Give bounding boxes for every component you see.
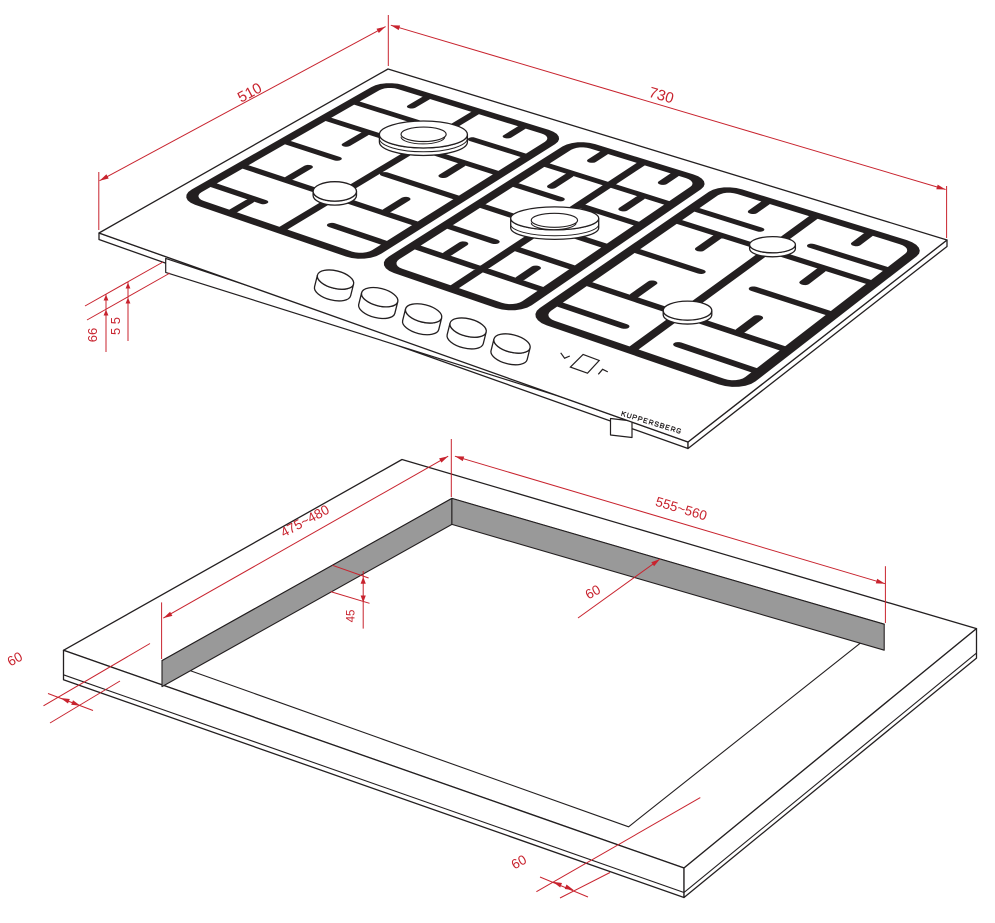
svg-text:60: 60 <box>509 852 529 872</box>
svg-text:45: 45 <box>346 610 358 623</box>
svg-text:730: 730 <box>647 84 676 107</box>
svg-text:555~560: 555~560 <box>654 494 709 523</box>
svg-text:60: 60 <box>5 649 25 669</box>
svg-text:5 5: 5 5 <box>108 317 123 335</box>
svg-text:66: 66 <box>85 328 100 342</box>
svg-text:510: 510 <box>235 80 265 107</box>
